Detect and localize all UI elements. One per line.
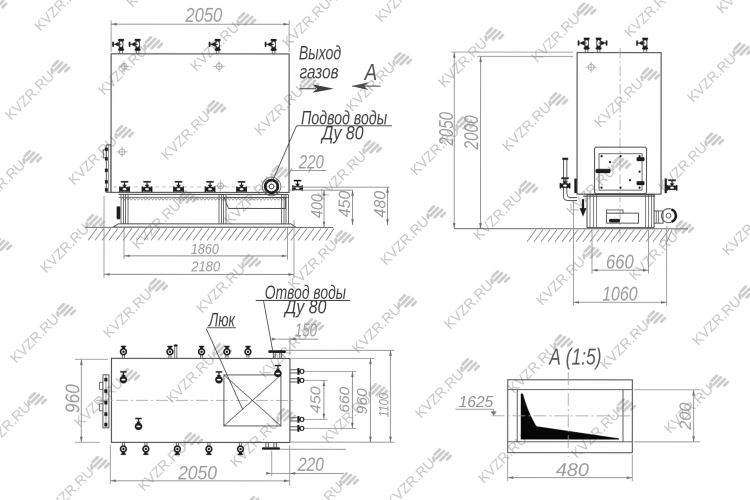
svg-text:А: А (363, 59, 377, 85)
svg-text:1860: 1860 (191, 241, 220, 258)
svg-text:150: 150 (295, 320, 317, 340)
svg-text:400: 400 (307, 194, 326, 218)
svg-text:Выход: Выход (299, 43, 341, 64)
svg-text:Ду 80: Ду 80 (320, 123, 364, 144)
svg-text:1625: 1625 (459, 394, 494, 411)
svg-text:480: 480 (556, 460, 589, 480)
svg-text:660: 660 (606, 250, 634, 273)
svg-text:450: 450 (335, 190, 354, 217)
svg-text:220: 220 (298, 151, 324, 173)
svg-text:1060: 1060 (602, 282, 638, 305)
svg-text:2180: 2180 (190, 258, 220, 275)
svg-text:газов: газов (300, 62, 339, 83)
svg-text:660: 660 (337, 387, 353, 413)
svg-text:2050: 2050 (177, 463, 217, 484)
svg-text:480: 480 (370, 190, 389, 217)
svg-text:960: 960 (62, 384, 85, 413)
svg-text:А (1:5): А (1:5) (548, 344, 602, 370)
svg-text:450: 450 (309, 386, 325, 413)
svg-text:220: 220 (297, 454, 324, 476)
svg-text:2050: 2050 (185, 4, 223, 27)
svg-text:2000: 2000 (460, 115, 483, 150)
svg-text:200: 200 (677, 402, 695, 431)
svg-text:1100: 1100 (377, 393, 392, 417)
svg-text:960: 960 (355, 388, 371, 414)
svg-text:Люк: Люк (207, 310, 235, 331)
svg-text:2050: 2050 (435, 112, 458, 147)
